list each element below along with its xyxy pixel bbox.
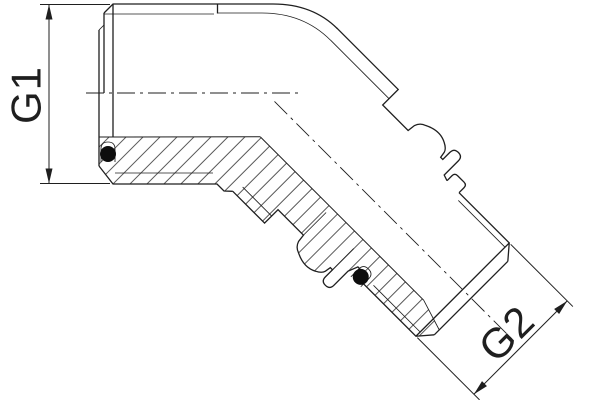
g2-extension-line-lower: [417, 338, 479, 400]
body-top-edge: [104, 4, 273, 13]
branch-upper-profile: [315, 28, 468, 181]
elbow-fitting-drawing: G2 G1: [0, 0, 600, 400]
thread-upper-edge: [449, 193, 518, 262]
technical-drawing-canvas: G2 G1: [0, 0, 600, 400]
g2-extension-line-upper: [511, 244, 573, 306]
end-chamfer-edge: [99, 25, 104, 30]
g1-dimension: G1: [3, 5, 110, 184]
g1-arrowhead-top: [46, 5, 53, 20]
bend-inner-arc: [218, 13, 331, 40]
g1-label: G1: [3, 66, 50, 124]
g1-arrowhead-bottom: [46, 169, 53, 184]
o-ring-seal-1: [100, 146, 116, 162]
bend-outer-arc: [273, 4, 337, 29]
body-flat-line-upper: [330, 40, 389, 99]
thread-root-upper: [458, 200, 505, 247]
groove-collar-upper: [447, 173, 467, 193]
